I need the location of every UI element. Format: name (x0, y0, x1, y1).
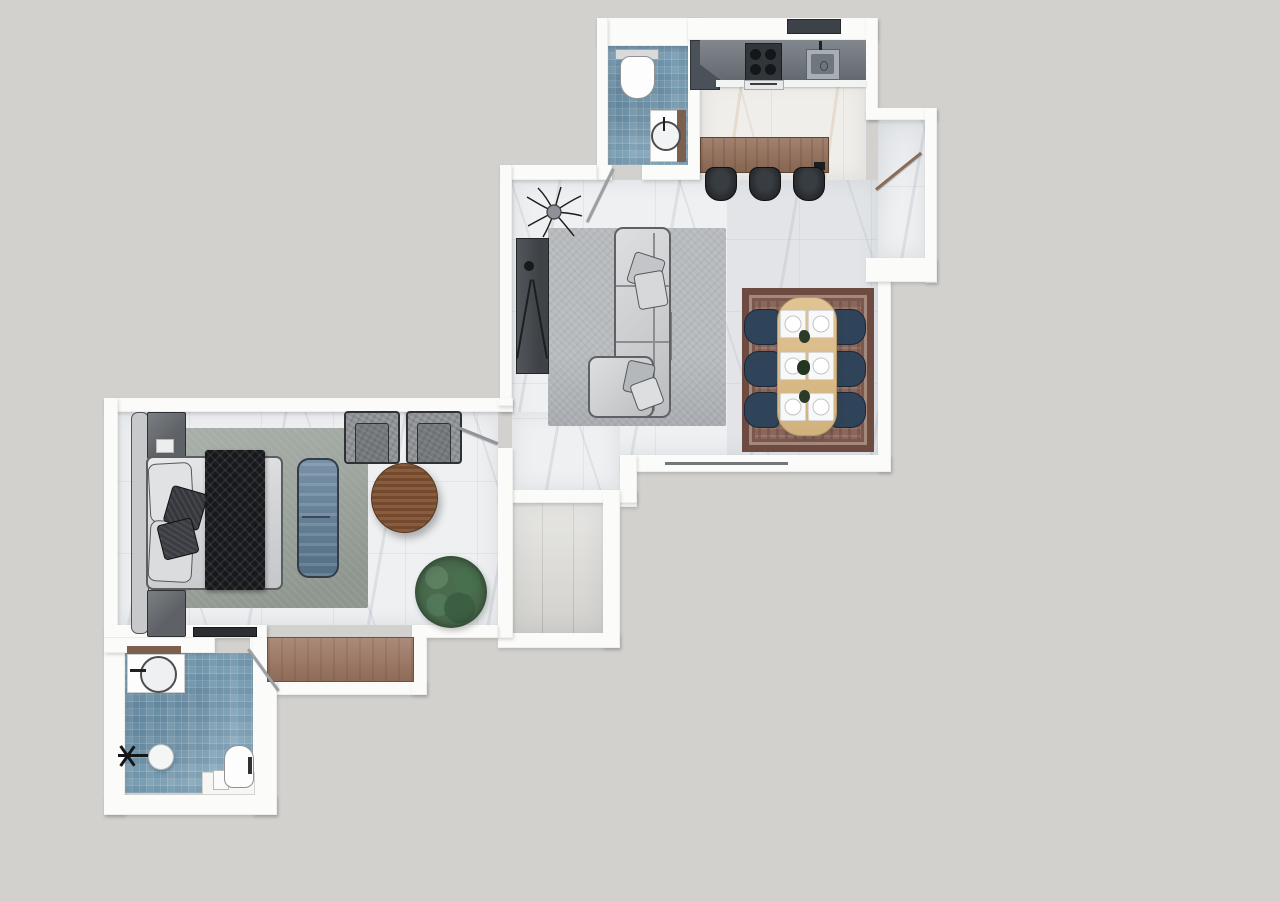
kitchen-sink (806, 49, 840, 80)
place-setting-r2 (808, 352, 834, 380)
table-centerpiece-2 (797, 360, 810, 375)
nightstand-book (156, 439, 174, 453)
wall-bedroom-top (104, 398, 513, 412)
wall-living-top-left (500, 165, 597, 180)
wall-balcony-bottom (498, 633, 620, 648)
burner (750, 64, 761, 75)
nightstand-bottom (147, 590, 186, 637)
bedroom-wall-tv (193, 627, 257, 637)
dining-chair-l2 (744, 351, 779, 387)
bedroom-armchair-1 (344, 411, 400, 464)
washbasin-faucet-bottom (130, 669, 146, 672)
wall-bath-bot-left (104, 638, 125, 815)
wall-kitchen-top (688, 18, 878, 40)
living-window (665, 462, 788, 465)
dining-chair-l3 (744, 392, 779, 428)
drain (820, 61, 828, 71)
toilet-bowl-top (620, 56, 655, 99)
nightstand-top (147, 412, 186, 459)
oven-handle (750, 83, 777, 85)
wall-bath-top-top (597, 18, 700, 46)
tv-console (516, 238, 549, 374)
wall-bedroom-right-a (498, 398, 513, 406)
bar-stool-1 (705, 167, 737, 201)
sink-basin (811, 54, 834, 74)
balcony-floor (513, 503, 603, 633)
washbasin-faucet-top (663, 117, 665, 131)
washbasin-bowl-bottom (140, 656, 177, 693)
place-setting-r1 (808, 310, 834, 338)
bar-stool-2 (749, 167, 781, 201)
toilet-hinge (248, 757, 252, 774)
tv-cable (532, 279, 548, 358)
wall-kitchen-right (866, 18, 878, 120)
sofa-pillow-2 (633, 270, 669, 311)
wall-bath-bot-bottom (104, 795, 277, 815)
tv-cable (516, 279, 532, 358)
wall-niche-bottom (253, 680, 427, 695)
table-centerpiece-3 (799, 390, 810, 403)
wall-bath-top-left (597, 18, 608, 177)
place-setting-r3 (808, 393, 834, 421)
wall-entry-right (925, 108, 937, 283)
wall-bath-top-bottom-b (642, 165, 700, 180)
oven-front (744, 80, 784, 90)
burner (765, 49, 776, 60)
dining-chair-l1 (744, 309, 779, 345)
range-hood (787, 19, 841, 34)
bedroom-armchair-2 (406, 411, 462, 464)
tv-speaker-knob (524, 261, 534, 271)
shower-drain-stool (148, 744, 174, 770)
floor-plan-canvas (0, 0, 1280, 901)
wall-living-right (878, 258, 891, 472)
burner (765, 64, 776, 75)
bench-seam (302, 516, 330, 518)
wardrobe-dresser (267, 637, 414, 682)
sink-faucet (819, 41, 822, 50)
wall-living-left (500, 165, 512, 412)
round-table (371, 463, 438, 533)
kitchen-counter (700, 40, 866, 82)
wall-entry-bottom (866, 258, 937, 282)
wall-niche-right (412, 637, 427, 695)
cooktop (745, 43, 782, 81)
table-centerpiece-1 (799, 330, 810, 343)
counter-front-edge (716, 80, 866, 87)
washbasin-bowl-top (651, 121, 681, 151)
bed-throw-blanket (205, 450, 265, 590)
potted-plant (415, 556, 487, 628)
wall-bedroom-left (104, 398, 118, 638)
bedroom-bench (297, 458, 339, 578)
bar-stool-3 (793, 167, 825, 201)
sofa-seam (616, 341, 669, 343)
branch-decor (525, 185, 583, 239)
wall-bedroom-right-b (498, 448, 513, 638)
wall-balcony-right (603, 490, 620, 648)
burner (750, 49, 761, 60)
entry-shadow (878, 122, 923, 256)
shower-arm (118, 754, 152, 757)
